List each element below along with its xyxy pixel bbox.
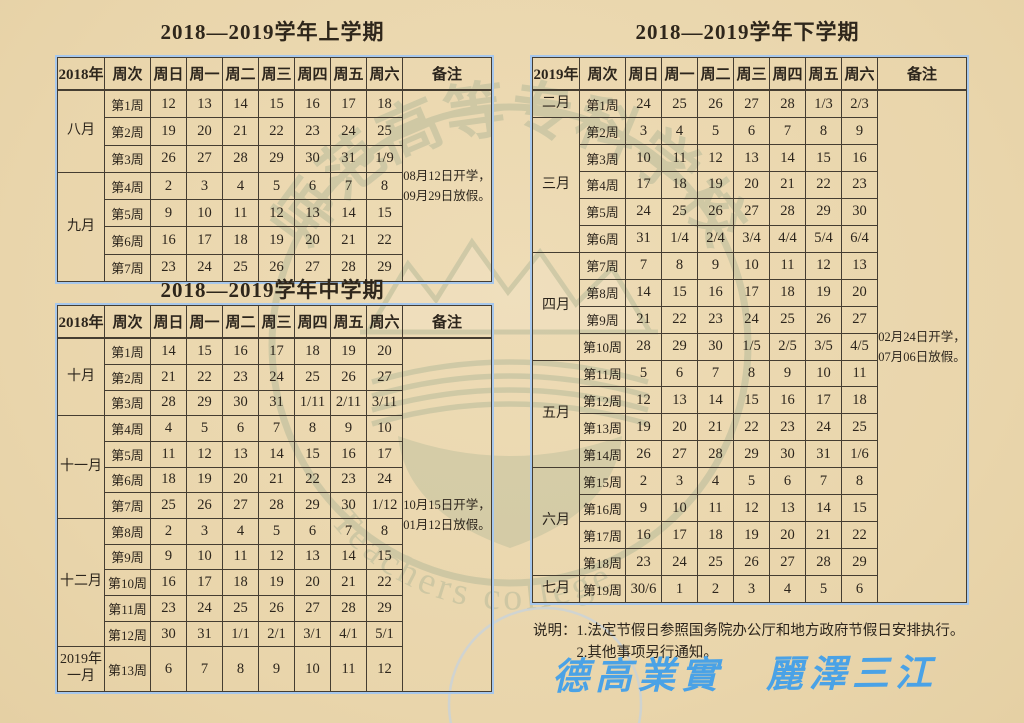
date-cell: 23 bbox=[626, 549, 662, 576]
weekday-header: 周日 bbox=[626, 58, 662, 91]
weekday-header: 周二 bbox=[223, 58, 259, 91]
date-cell: 14 bbox=[331, 200, 367, 227]
date-cell: 9 bbox=[698, 252, 734, 279]
weekday-header: 周六 bbox=[367, 306, 403, 339]
date-cell: 4/5 bbox=[842, 333, 878, 360]
date-cell: 27 bbox=[223, 493, 259, 519]
weekday-header: 周日 bbox=[151, 306, 187, 339]
date-cell: 19 bbox=[151, 118, 187, 145]
date-cell: 29 bbox=[662, 333, 698, 360]
date-cell: 31 bbox=[259, 390, 295, 416]
date-cell: 19 bbox=[698, 171, 734, 198]
date-cell: 1/12 bbox=[367, 493, 403, 519]
date-cell: 23 bbox=[331, 467, 367, 493]
date-cell: 24 bbox=[626, 198, 662, 225]
date-cell: 25 bbox=[662, 198, 698, 225]
date-cell: 2/3 bbox=[842, 90, 878, 118]
date-cell: 6/4 bbox=[842, 225, 878, 252]
date-cell: 26 bbox=[151, 145, 187, 172]
date-cell: 19 bbox=[331, 338, 367, 364]
date-cell: 12 bbox=[187, 441, 223, 467]
date-cell: 9 bbox=[770, 360, 806, 387]
date-cell: 5 bbox=[187, 416, 223, 442]
date-cell: 12 bbox=[151, 90, 187, 118]
date-cell: 12 bbox=[806, 252, 842, 279]
date-cell: 13 bbox=[295, 200, 331, 227]
date-cell: 3 bbox=[626, 118, 662, 145]
date-cell: 16 bbox=[626, 522, 662, 549]
date-cell: 18 bbox=[295, 338, 331, 364]
date-cell: 8 bbox=[367, 172, 403, 199]
date-cell: 11 bbox=[770, 252, 806, 279]
date-cell: 22 bbox=[662, 306, 698, 333]
date-cell: 6 bbox=[662, 360, 698, 387]
date-cell: 31 bbox=[806, 441, 842, 468]
date-cell: 19 bbox=[806, 279, 842, 306]
date-cell: 21 bbox=[331, 227, 367, 254]
date-cell: 10 bbox=[806, 360, 842, 387]
date-cell: 8 bbox=[367, 518, 403, 544]
date-cell: 3/4 bbox=[734, 225, 770, 252]
date-cell: 6 bbox=[734, 118, 770, 145]
date-cell: 11 bbox=[698, 495, 734, 522]
date-cell: 29 bbox=[259, 145, 295, 172]
date-cell: 8 bbox=[734, 360, 770, 387]
date-cell: 26 bbox=[734, 549, 770, 576]
date-cell: 25 bbox=[842, 414, 878, 441]
date-cell: 18 bbox=[662, 171, 698, 198]
date-cell: 9 bbox=[259, 647, 295, 692]
semester3-calendar-table: 2019年周次周日周一周二周三周四周五周六备注二月第1周24252627281/… bbox=[530, 55, 969, 605]
date-cell: 2/4 bbox=[698, 225, 734, 252]
weekday-header: 周五 bbox=[331, 58, 367, 91]
date-cell: 5 bbox=[734, 468, 770, 495]
weekday-header: 周四 bbox=[295, 306, 331, 339]
date-cell: 2 bbox=[151, 518, 187, 544]
week-number-label: 第12周 bbox=[105, 621, 151, 647]
week-number-label: 第17周 bbox=[580, 522, 626, 549]
date-cell: 29 bbox=[295, 493, 331, 519]
week-number-label: 第1周 bbox=[580, 90, 626, 118]
date-cell: 18 bbox=[223, 227, 259, 254]
date-cell: 20 bbox=[295, 227, 331, 254]
date-cell: 11 bbox=[223, 200, 259, 227]
date-cell: 21 bbox=[331, 570, 367, 596]
weekday-header: 周五 bbox=[806, 58, 842, 91]
date-cell: 19 bbox=[259, 570, 295, 596]
week-number-label: 第4周 bbox=[105, 416, 151, 442]
date-cell: 14 bbox=[698, 387, 734, 414]
date-cell: 21 bbox=[151, 364, 187, 390]
date-cell: 16 bbox=[698, 279, 734, 306]
week-number-label: 第16周 bbox=[580, 495, 626, 522]
date-cell: 27 bbox=[842, 306, 878, 333]
date-cell: 31 bbox=[331, 145, 367, 172]
month-label: 三月 bbox=[533, 118, 580, 253]
date-cell: 12 bbox=[259, 200, 295, 227]
date-cell: 25 bbox=[223, 596, 259, 622]
date-cell: 28 bbox=[331, 596, 367, 622]
date-cell: 15 bbox=[187, 338, 223, 364]
date-cell: 9 bbox=[626, 495, 662, 522]
remark-cell: 02月24日开学，07月06日放假。 bbox=[878, 90, 967, 603]
date-cell: 25 bbox=[295, 364, 331, 390]
date-cell: 26 bbox=[259, 596, 295, 622]
date-cell: 15 bbox=[367, 544, 403, 570]
date-cell: 27 bbox=[187, 145, 223, 172]
motto-left: 德高業實 bbox=[552, 645, 725, 701]
date-cell: 22 bbox=[367, 227, 403, 254]
week-column-header: 周次 bbox=[105, 306, 151, 339]
date-cell: 16 bbox=[842, 145, 878, 172]
date-cell: 27 bbox=[734, 90, 770, 118]
motto-right: 麗澤三江 bbox=[766, 642, 939, 698]
week-number-label: 第13周 bbox=[105, 647, 151, 692]
month-label: 八月 bbox=[58, 90, 105, 172]
date-cell: 6 bbox=[770, 468, 806, 495]
date-cell: 15 bbox=[806, 145, 842, 172]
date-cell: 10 bbox=[187, 200, 223, 227]
week-row: 八月第1周1213141516171808月12日开学，09月29日放假。 bbox=[58, 90, 492, 118]
date-cell: 24 bbox=[367, 467, 403, 493]
date-cell: 18 bbox=[698, 522, 734, 549]
date-cell: 20 bbox=[187, 118, 223, 145]
date-cell: 16 bbox=[295, 90, 331, 118]
date-cell: 10 bbox=[367, 416, 403, 442]
date-cell: 9 bbox=[842, 118, 878, 145]
date-cell: 21 bbox=[770, 171, 806, 198]
date-cell: 6 bbox=[295, 172, 331, 199]
date-cell: 24 bbox=[806, 414, 842, 441]
semester2-title: 2018—2019学年中学期 bbox=[55, 274, 490, 304]
date-cell: 4/1 bbox=[331, 621, 367, 647]
week-number-label: 第4周 bbox=[105, 172, 151, 199]
date-cell: 2 bbox=[626, 468, 662, 495]
date-cell: 3/1 bbox=[295, 621, 331, 647]
date-cell: 24 bbox=[259, 364, 295, 390]
remark-column-header: 备注 bbox=[403, 306, 492, 339]
date-cell: 17 bbox=[331, 90, 367, 118]
remark-column-header: 备注 bbox=[878, 58, 967, 91]
date-cell: 18 bbox=[367, 90, 403, 118]
date-cell: 6 bbox=[842, 576, 878, 603]
date-cell: 23 bbox=[842, 171, 878, 198]
date-cell: 16 bbox=[331, 441, 367, 467]
week-number-label: 第5周 bbox=[580, 198, 626, 225]
date-cell: 7 bbox=[259, 416, 295, 442]
date-cell: 7 bbox=[806, 468, 842, 495]
note-item-1: 1.法定节假日参照国务院办公厅和地方政府节假日安排执行。 bbox=[577, 620, 965, 642]
date-cell: 28 bbox=[151, 390, 187, 416]
date-cell: 16 bbox=[151, 227, 187, 254]
week-number-label: 第19周 bbox=[580, 576, 626, 603]
date-cell: 1/6 bbox=[842, 441, 878, 468]
date-cell: 3 bbox=[734, 576, 770, 603]
date-cell: 19 bbox=[259, 227, 295, 254]
date-cell: 26 bbox=[626, 441, 662, 468]
year-column-header: 2018年 bbox=[58, 58, 105, 91]
date-cell: 13 bbox=[662, 387, 698, 414]
date-cell: 20 bbox=[770, 522, 806, 549]
date-cell: 27 bbox=[734, 198, 770, 225]
date-cell: 4 bbox=[662, 118, 698, 145]
date-cell: 22 bbox=[187, 364, 223, 390]
week-number-label: 第9周 bbox=[580, 306, 626, 333]
date-cell: 14 bbox=[806, 495, 842, 522]
date-cell: 18 bbox=[223, 570, 259, 596]
date-cell: 15 bbox=[367, 200, 403, 227]
date-cell: 23 bbox=[295, 118, 331, 145]
date-cell: 8 bbox=[223, 647, 259, 692]
date-cell: 19 bbox=[734, 522, 770, 549]
date-cell: 21 bbox=[698, 414, 734, 441]
week-number-label: 第6周 bbox=[580, 225, 626, 252]
date-cell: 24 bbox=[331, 118, 367, 145]
date-cell: 2 bbox=[698, 576, 734, 603]
date-cell: 14 bbox=[331, 544, 367, 570]
week-number-label: 第6周 bbox=[105, 227, 151, 254]
semester1-calendar-table: 2018年周次周日周一周二周三周四周五周六备注八月第1周121314151617… bbox=[55, 55, 494, 284]
date-cell: 8 bbox=[295, 416, 331, 442]
date-cell: 14 bbox=[259, 441, 295, 467]
remark-cell: 10月15日开学，01月12日放假。 bbox=[403, 338, 492, 692]
date-cell: 13 bbox=[842, 252, 878, 279]
date-cell: 29 bbox=[806, 198, 842, 225]
week-number-label: 第1周 bbox=[105, 338, 151, 364]
weekday-header: 周一 bbox=[187, 58, 223, 91]
date-cell: 19 bbox=[187, 467, 223, 493]
week-number-label: 第18周 bbox=[580, 549, 626, 576]
week-number-label: 第6周 bbox=[105, 467, 151, 493]
month-label: 四月 bbox=[533, 252, 580, 360]
date-cell: 4 bbox=[151, 416, 187, 442]
date-cell: 2 bbox=[151, 172, 187, 199]
weekday-header: 周三 bbox=[259, 58, 295, 91]
year-column-header: 2018年 bbox=[58, 306, 105, 339]
date-cell: 24 bbox=[626, 90, 662, 118]
date-cell: 5 bbox=[698, 118, 734, 145]
week-column-header: 周次 bbox=[105, 58, 151, 91]
date-cell: 7 bbox=[770, 118, 806, 145]
week-number-label: 第10周 bbox=[580, 333, 626, 360]
date-cell: 15 bbox=[259, 90, 295, 118]
date-cell: 27 bbox=[295, 596, 331, 622]
date-cell: 31 bbox=[187, 621, 223, 647]
date-cell: 23 bbox=[223, 364, 259, 390]
date-cell: 3/5 bbox=[806, 333, 842, 360]
week-number-label: 第11周 bbox=[580, 360, 626, 387]
date-cell: 14 bbox=[770, 145, 806, 172]
week-number-label: 第10周 bbox=[105, 570, 151, 596]
date-cell: 20 bbox=[367, 338, 403, 364]
date-cell: 22 bbox=[842, 522, 878, 549]
date-cell: 5/4 bbox=[806, 225, 842, 252]
date-cell: 5 bbox=[806, 576, 842, 603]
date-cell: 20 bbox=[295, 570, 331, 596]
year-column-header: 2019年 bbox=[533, 58, 580, 91]
date-cell: 4 bbox=[698, 468, 734, 495]
month-label: 九月 bbox=[58, 172, 105, 281]
date-cell: 17 bbox=[734, 279, 770, 306]
date-cell: 19 bbox=[626, 414, 662, 441]
date-cell: 12 bbox=[367, 647, 403, 692]
date-cell: 8 bbox=[662, 252, 698, 279]
week-number-label: 第12周 bbox=[580, 387, 626, 414]
date-cell: 31 bbox=[626, 225, 662, 252]
date-cell: 22 bbox=[295, 467, 331, 493]
date-cell: 20 bbox=[842, 279, 878, 306]
date-cell: 8 bbox=[806, 118, 842, 145]
date-cell: 3/11 bbox=[367, 390, 403, 416]
date-cell: 12 bbox=[259, 544, 295, 570]
date-cell: 17 bbox=[806, 387, 842, 414]
date-cell: 12 bbox=[734, 495, 770, 522]
weekday-header: 周一 bbox=[662, 58, 698, 91]
date-cell: 12 bbox=[626, 387, 662, 414]
date-cell: 15 bbox=[842, 495, 878, 522]
date-cell: 13 bbox=[770, 495, 806, 522]
week-number-label: 第5周 bbox=[105, 441, 151, 467]
month-label: 五月 bbox=[533, 360, 580, 468]
date-cell: 10 bbox=[626, 145, 662, 172]
date-cell: 13 bbox=[223, 441, 259, 467]
date-cell: 30 bbox=[151, 621, 187, 647]
date-cell: 14 bbox=[151, 338, 187, 364]
date-cell: 7 bbox=[331, 172, 367, 199]
date-cell: 26 bbox=[698, 90, 734, 118]
date-cell: 9 bbox=[151, 200, 187, 227]
date-cell: 28 bbox=[626, 333, 662, 360]
date-cell: 18 bbox=[842, 387, 878, 414]
date-cell: 18 bbox=[151, 467, 187, 493]
date-cell: 11 bbox=[662, 145, 698, 172]
date-cell: 7 bbox=[698, 360, 734, 387]
week-number-label: 第2周 bbox=[105, 364, 151, 390]
month-label: 七月 bbox=[533, 576, 580, 603]
date-cell: 17 bbox=[187, 227, 223, 254]
week-number-label: 第11周 bbox=[105, 596, 151, 622]
date-cell: 1/3 bbox=[806, 90, 842, 118]
weekday-header: 周一 bbox=[187, 306, 223, 339]
date-cell: 14 bbox=[223, 90, 259, 118]
week-number-label: 第14周 bbox=[580, 441, 626, 468]
date-cell: 22 bbox=[367, 570, 403, 596]
week-number-label: 第15周 bbox=[580, 468, 626, 495]
date-cell: 13 bbox=[295, 544, 331, 570]
weekday-header: 周二 bbox=[223, 306, 259, 339]
date-cell: 23 bbox=[698, 306, 734, 333]
week-number-label: 第8周 bbox=[580, 279, 626, 306]
date-cell: 17 bbox=[626, 171, 662, 198]
date-cell: 13 bbox=[187, 90, 223, 118]
month-label: 十月 bbox=[58, 338, 105, 416]
date-cell: 13 bbox=[734, 145, 770, 172]
date-cell: 1/11 bbox=[295, 390, 331, 416]
date-cell: 5/1 bbox=[367, 621, 403, 647]
weekday-header: 周日 bbox=[151, 58, 187, 91]
date-cell: 23 bbox=[151, 596, 187, 622]
date-cell: 24 bbox=[187, 596, 223, 622]
date-cell: 28 bbox=[259, 493, 295, 519]
date-cell: 11 bbox=[842, 360, 878, 387]
date-cell: 5 bbox=[259, 518, 295, 544]
date-cell: 12 bbox=[698, 145, 734, 172]
date-cell: 4 bbox=[770, 576, 806, 603]
date-cell: 25 bbox=[151, 493, 187, 519]
date-cell: 1/4 bbox=[662, 225, 698, 252]
week-number-label: 第13周 bbox=[580, 414, 626, 441]
date-cell: 17 bbox=[259, 338, 295, 364]
week-number-label: 第7周 bbox=[580, 252, 626, 279]
date-cell: 4 bbox=[223, 518, 259, 544]
date-cell: 28 bbox=[223, 145, 259, 172]
week-number-label: 第8周 bbox=[105, 518, 151, 544]
date-cell: 18 bbox=[770, 279, 806, 306]
date-cell: 24 bbox=[662, 549, 698, 576]
date-cell: 6 bbox=[223, 416, 259, 442]
semester2-calendar-table: 2018年周次周日周一周二周三周四周五周六备注十月第1周141516171819… bbox=[55, 303, 494, 694]
month-label: 六月 bbox=[533, 468, 580, 576]
date-cell: 5 bbox=[259, 172, 295, 199]
date-cell: 1/1 bbox=[223, 621, 259, 647]
date-cell: 2/11 bbox=[331, 390, 367, 416]
date-cell: 30 bbox=[223, 390, 259, 416]
week-number-label: 第3周 bbox=[105, 390, 151, 416]
week-row: 二月第1周24252627281/32/302月24日开学，07月06日放假。 bbox=[533, 90, 967, 118]
weekday-header: 周六 bbox=[367, 58, 403, 91]
date-cell: 25 bbox=[770, 306, 806, 333]
date-cell: 3 bbox=[187, 172, 223, 199]
date-cell: 23 bbox=[770, 414, 806, 441]
date-cell: 3 bbox=[662, 468, 698, 495]
date-cell: 30/6 bbox=[626, 576, 662, 603]
weekday-header: 周三 bbox=[734, 58, 770, 91]
date-cell: 7 bbox=[626, 252, 662, 279]
date-cell: 30 bbox=[770, 441, 806, 468]
date-cell: 16 bbox=[151, 570, 187, 596]
date-cell: 21 bbox=[259, 467, 295, 493]
date-cell: 11 bbox=[331, 647, 367, 692]
date-cell: 16 bbox=[223, 338, 259, 364]
remark-column-header: 备注 bbox=[403, 58, 492, 91]
date-cell: 27 bbox=[770, 549, 806, 576]
week-number-label: 第7周 bbox=[105, 493, 151, 519]
date-cell: 29 bbox=[367, 596, 403, 622]
date-cell: 20 bbox=[662, 414, 698, 441]
weekday-header: 周四 bbox=[770, 58, 806, 91]
date-cell: 6 bbox=[151, 647, 187, 692]
date-cell: 17 bbox=[187, 570, 223, 596]
school-motto-calligraphy: 德高業實 麗澤三江 bbox=[552, 642, 993, 701]
date-cell: 26 bbox=[698, 198, 734, 225]
date-cell: 28 bbox=[770, 90, 806, 118]
date-cell: 14 bbox=[626, 279, 662, 306]
weekday-header: 周三 bbox=[259, 306, 295, 339]
week-number-label: 第9周 bbox=[105, 544, 151, 570]
date-cell: 2/1 bbox=[259, 621, 295, 647]
date-cell: 10 bbox=[734, 252, 770, 279]
date-cell: 29 bbox=[187, 390, 223, 416]
week-number-label: 第4周 bbox=[580, 171, 626, 198]
date-cell: 5 bbox=[626, 360, 662, 387]
date-cell: 27 bbox=[662, 441, 698, 468]
date-cell: 30 bbox=[295, 145, 331, 172]
date-cell: 10 bbox=[295, 647, 331, 692]
date-cell: 26 bbox=[806, 306, 842, 333]
month-label: 十一月 bbox=[58, 416, 105, 519]
date-cell: 15 bbox=[734, 387, 770, 414]
week-number-label: 第2周 bbox=[105, 118, 151, 145]
